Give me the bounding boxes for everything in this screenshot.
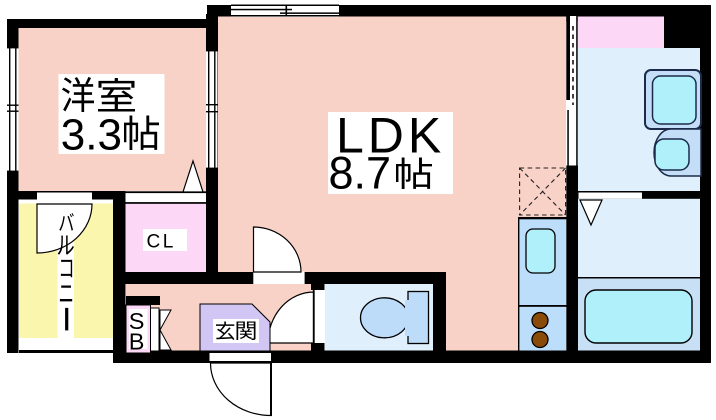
svg-text:B: B	[129, 329, 145, 355]
svg-text:CL: CL	[147, 232, 176, 253]
svg-text:3.3: 3.3	[61, 111, 122, 160]
svg-text:8.7: 8.7	[329, 148, 392, 199]
